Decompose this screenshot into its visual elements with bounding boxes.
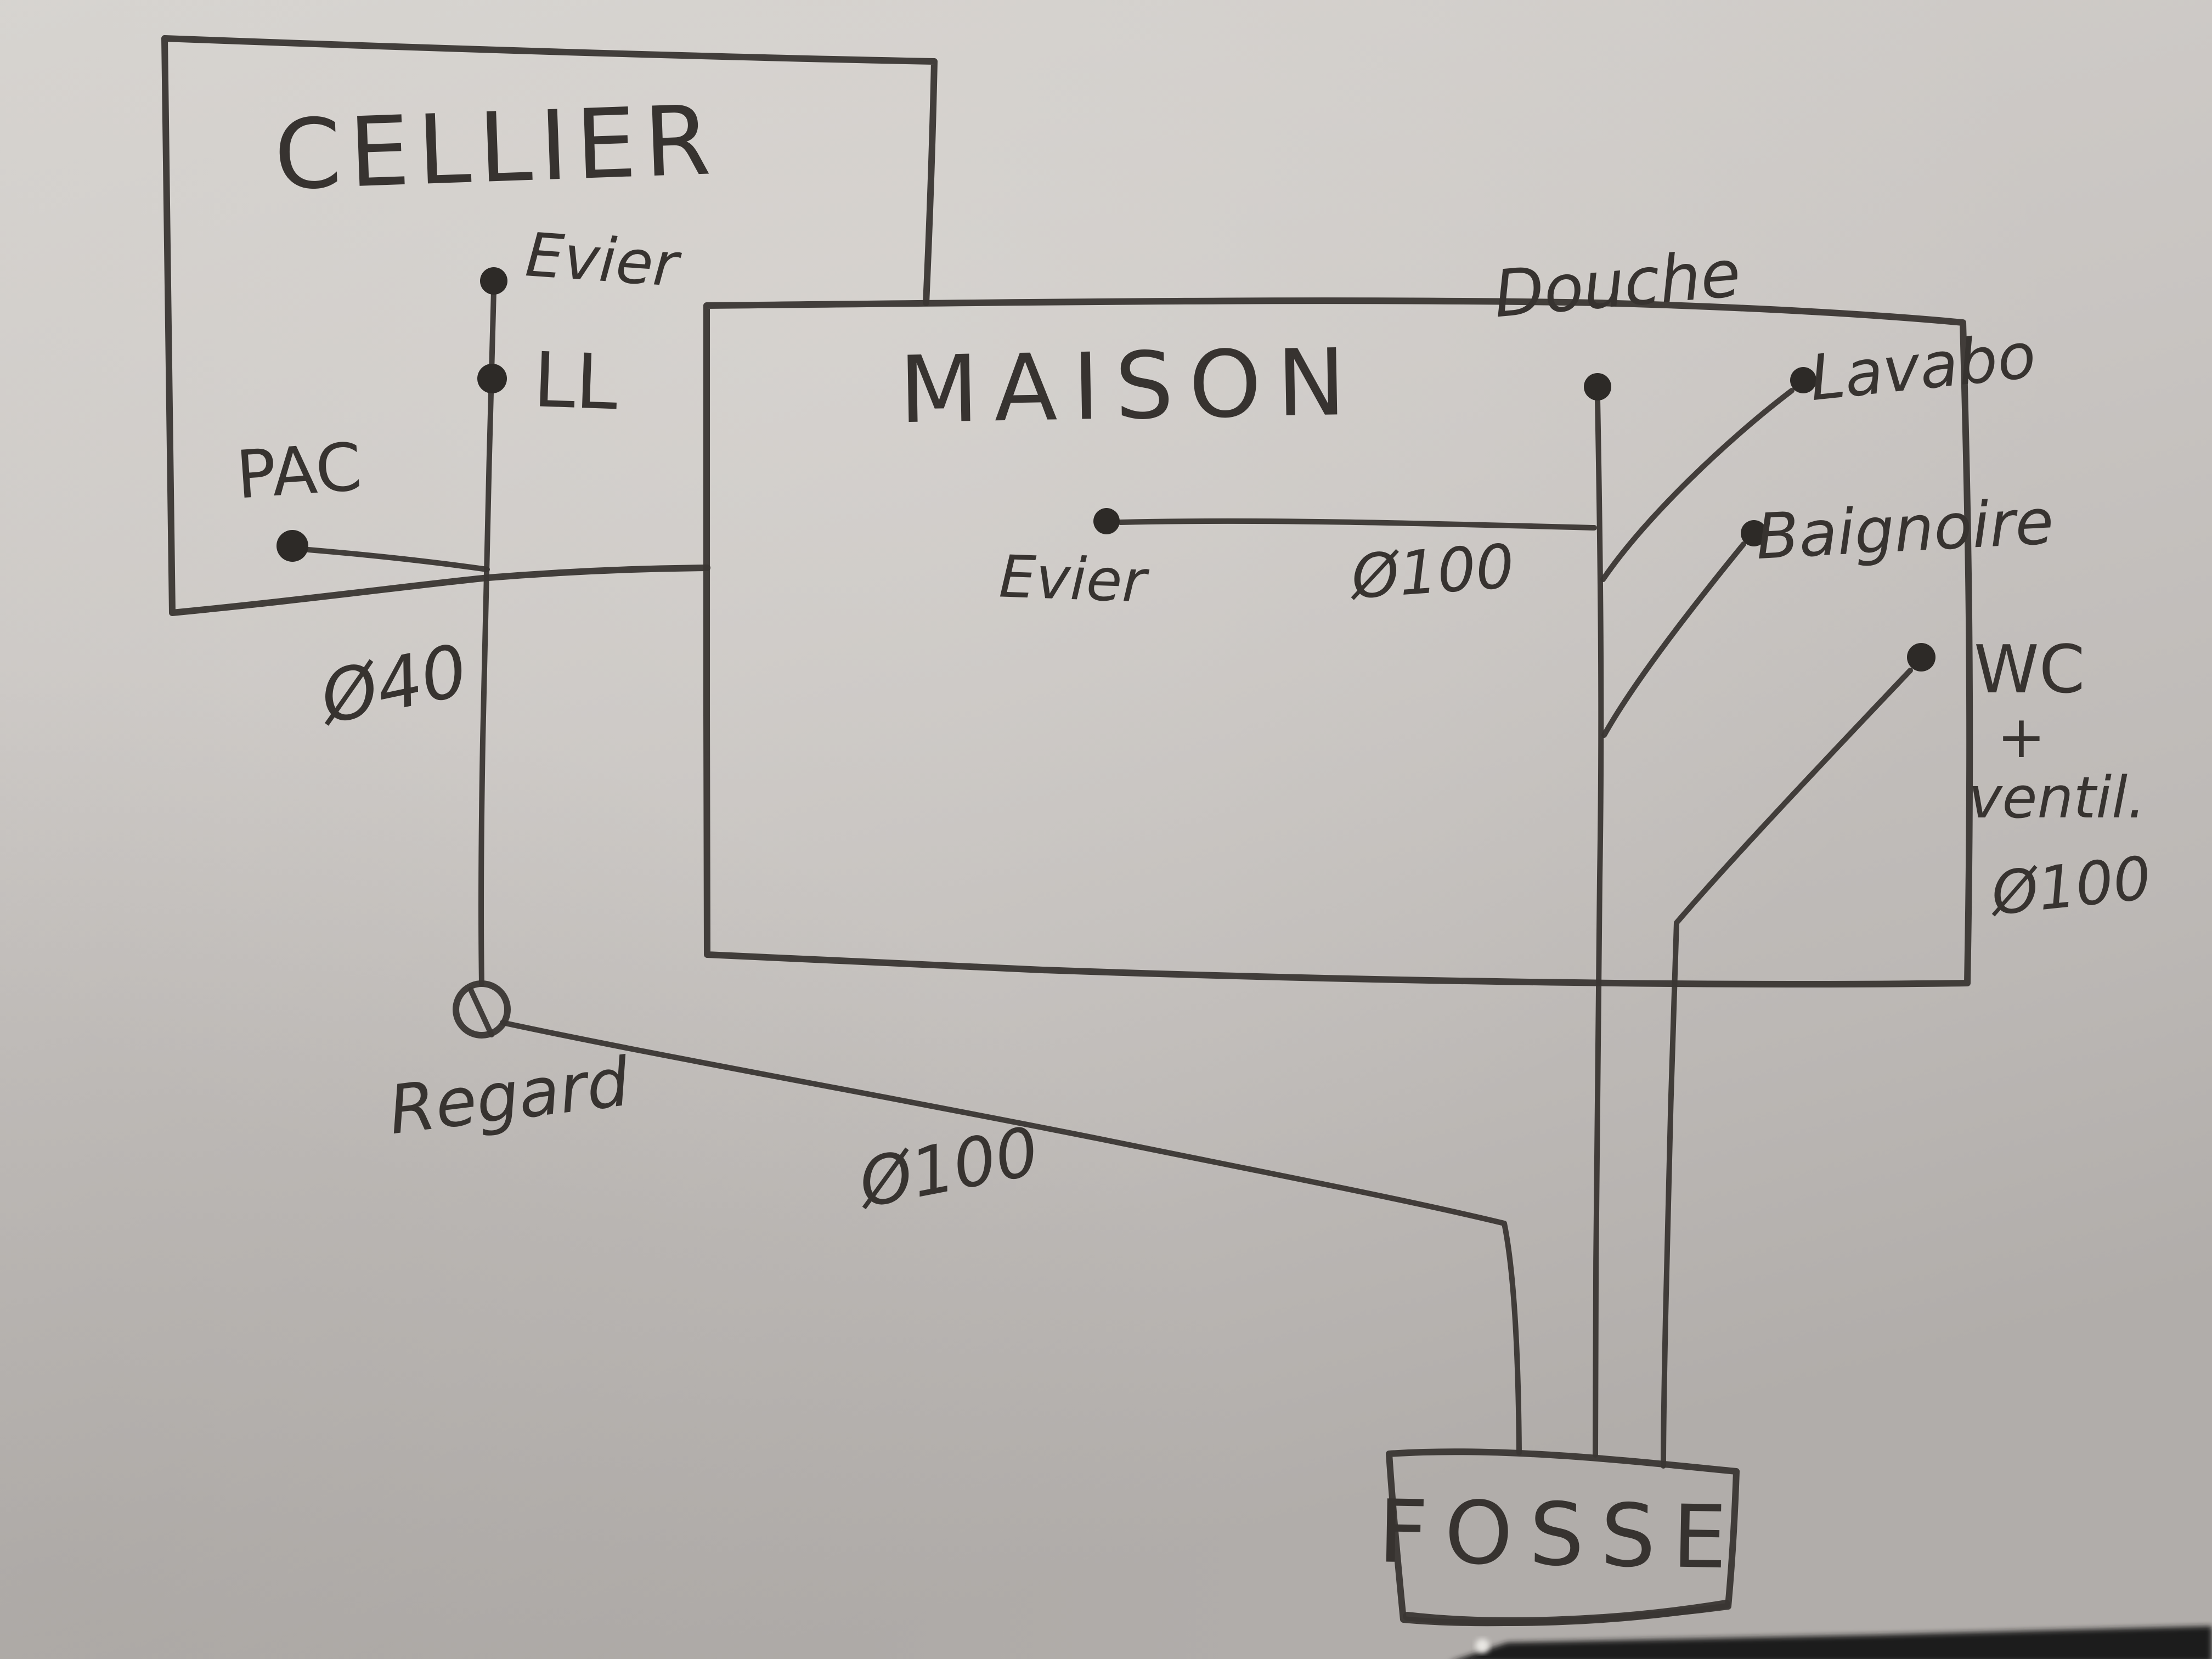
lave-linge-node [477,364,507,393]
cellier-label: CELLIER [273,85,720,212]
maison-evier-node [1093,508,1120,534]
maison-evier-label: Evier [998,543,1150,616]
cellier-evier-label: Evier [523,219,684,300]
pac-node [276,530,308,562]
lave-linge-label: LL [532,336,619,427]
douche-node [1584,373,1611,400]
maison-label: MAISON [898,329,1362,444]
paper-corner-speck [1475,1639,1489,1653]
wc-label-line1: WC [1974,632,2085,708]
fosse-label: FOSSE [1378,1481,1745,1589]
baignoire-label: Baignoire [1754,485,2055,573]
sketch-canvas: CELLIER MAISON FOSSE Evier LL PAC Evier … [0,0,2212,1659]
hand-drawn-plumbing-sketch: CELLIER MAISON FOSSE Evier LL PAC Evier … [0,0,2212,1659]
cellier-evier-node [480,267,507,295]
paper-shadow [0,0,2212,1659]
pipe-d100-evier-label: Ø100 [1347,531,1516,613]
wc-node [1907,643,1936,672]
wc-label-line2: + [1997,703,2046,771]
pac-label: PAC [234,429,364,514]
wc-label-line3: ventil. [1968,764,2146,831]
